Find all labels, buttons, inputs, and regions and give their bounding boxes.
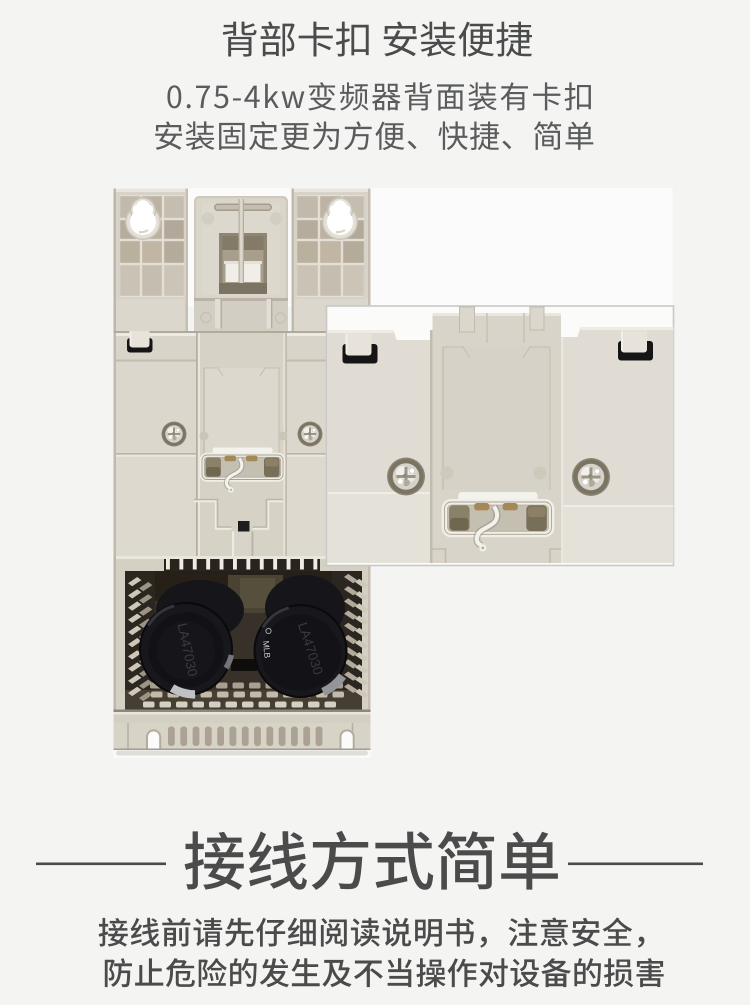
svg-text:MLB: MLB <box>261 640 273 659</box>
